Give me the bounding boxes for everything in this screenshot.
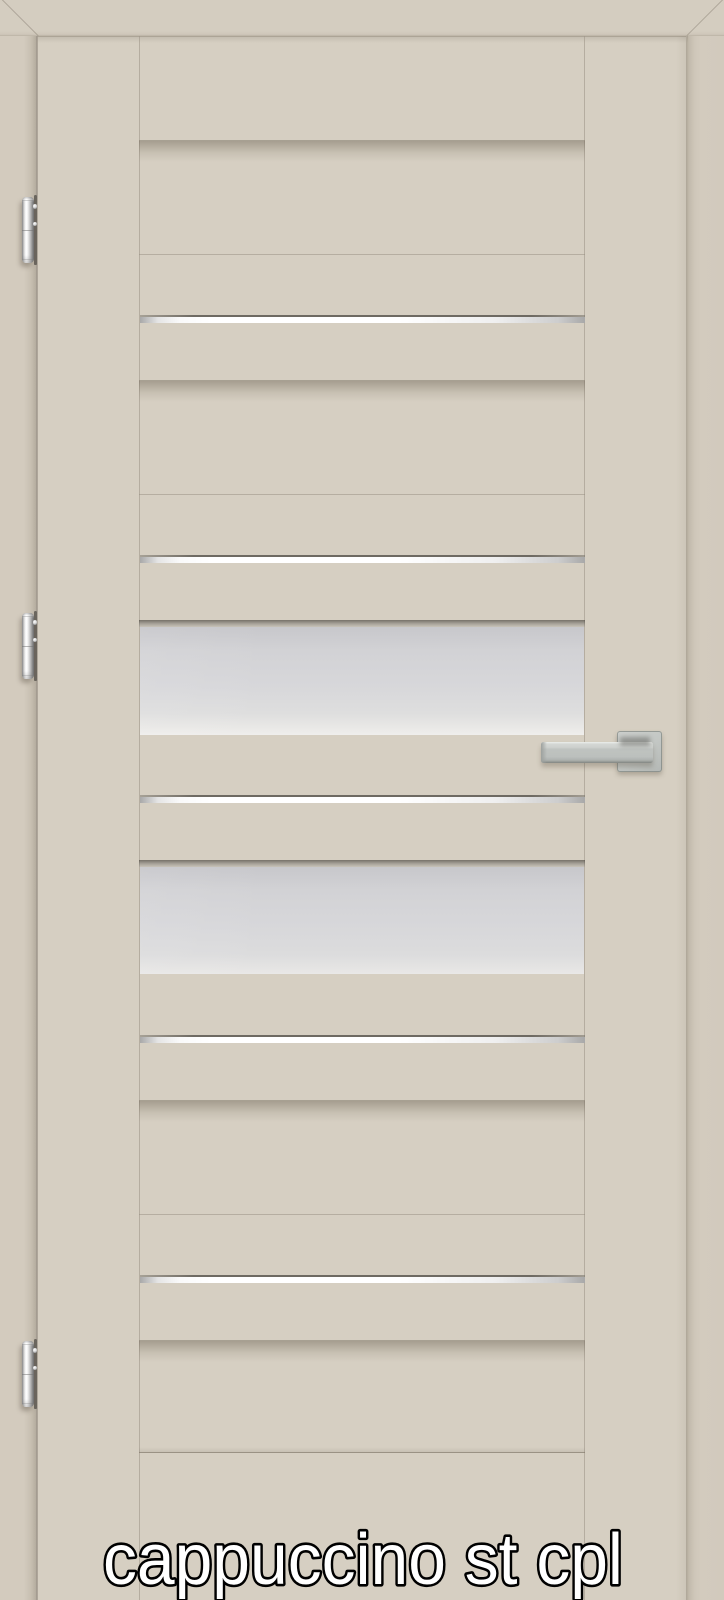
svg-text:cappuccino st cpl: cappuccino st cpl [103, 1520, 623, 1600]
